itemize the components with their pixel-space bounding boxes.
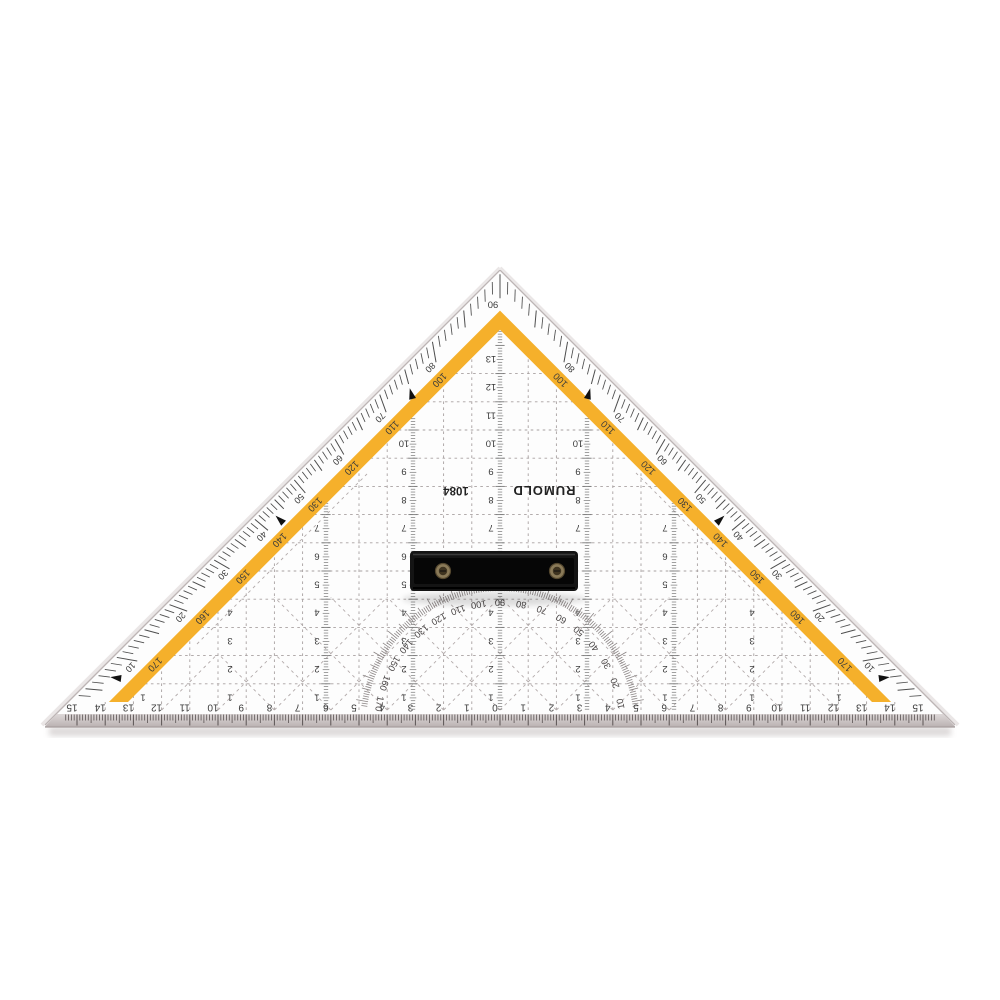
cm-scale-number: 9	[746, 701, 752, 712]
row-number: 5	[662, 578, 667, 589]
row-number: 10	[399, 437, 410, 448]
cm-scale-number: 3	[407, 701, 413, 712]
row-number: 5	[314, 578, 319, 589]
cm-scale-number: 14	[884, 701, 896, 712]
cm-scale-number: 13	[856, 701, 868, 712]
cm-scale-number: 13	[122, 701, 134, 712]
cm-scale-number: 2	[435, 701, 441, 712]
row-number: 3	[314, 635, 319, 646]
row-number: 10	[486, 437, 497, 448]
cm-scale-number: 15	[912, 701, 924, 712]
row-number: 4	[227, 607, 232, 618]
row-number: 1	[401, 691, 406, 702]
row-number: 9	[488, 466, 493, 477]
row-number: 4	[488, 607, 493, 618]
row-number: 7	[488, 522, 493, 533]
cm-scale-number: 11	[800, 701, 811, 712]
row-number: 2	[575, 663, 580, 674]
model-text: 1084	[443, 484, 469, 496]
cm-scale-number: 15	[66, 701, 78, 712]
cm-scale-number: 10	[207, 701, 219, 712]
row-number: 1	[662, 691, 667, 702]
row-number: 11	[486, 409, 496, 420]
row-number: 1	[836, 691, 841, 702]
row-number: 3	[749, 635, 754, 646]
row-number: 1	[488, 691, 493, 702]
row-number: 6	[314, 550, 319, 561]
cm-scale-number: 4	[605, 701, 611, 712]
row-number: 8	[401, 494, 406, 505]
handle-shadow	[402, 592, 586, 606]
row-number: 12	[486, 381, 497, 392]
cm-scale-number: 10	[771, 701, 783, 712]
cm-scale-zero: 0	[492, 701, 498, 712]
row-number: 4	[662, 607, 667, 618]
triangle-body	[42, 268, 958, 736]
cm-scale-number: 8	[266, 701, 272, 712]
row-number: 1	[749, 691, 754, 702]
cm-scale-number: 2	[548, 701, 554, 712]
row-number: 6	[662, 550, 667, 561]
cm-scale-number: 14	[94, 701, 106, 712]
cm-scale-number: 1	[520, 701, 526, 712]
row-number: 13	[486, 353, 497, 364]
row-number: 7	[575, 522, 580, 533]
row-number: 9	[575, 466, 580, 477]
row-number: 2	[662, 663, 667, 674]
row-number: 2	[749, 663, 754, 674]
row-number: 5	[401, 578, 406, 589]
row-number: 4	[401, 607, 406, 618]
row-number: 7	[314, 522, 319, 533]
cm-scale-number: 12	[151, 701, 163, 712]
row-number: 2	[314, 663, 319, 674]
row-number: 2	[227, 663, 232, 674]
arc-degree-label: 10	[615, 698, 627, 710]
cm-scale-number: 7	[294, 701, 300, 712]
set-square-photo: 1111111112222222333333344444445556667777…	[0, 0, 1000, 1000]
row-number: 1	[314, 691, 319, 702]
row-number: 1	[140, 691, 145, 702]
cm-scale-number: 8	[717, 701, 723, 712]
row-number: 7	[662, 522, 667, 533]
drop-shadow	[49, 727, 951, 736]
row-number: 2	[401, 663, 406, 674]
cm-scale-number: 5	[633, 701, 639, 712]
apex-degree-label: 90	[488, 298, 499, 309]
row-number: 2	[488, 663, 493, 674]
row-number: 9	[401, 466, 406, 477]
row-number: 4	[314, 607, 319, 618]
cm-scale-number: 6	[661, 701, 667, 712]
cm-scale-number: 11	[179, 701, 190, 712]
cm-scale-number: 7	[689, 701, 695, 712]
product-photo: 1111111112222222333333344444445556667777…	[0, 0, 1000, 1000]
row-number: 10	[573, 437, 584, 448]
row-number: 1	[575, 691, 580, 702]
cm-scale-number: 5	[351, 701, 357, 712]
row-number: 3	[662, 635, 667, 646]
cm-scale-number: 3	[576, 701, 582, 712]
row-number: 4	[749, 607, 754, 618]
row-number: 6	[401, 550, 406, 561]
cm-scale-number: 6	[323, 701, 329, 712]
row-number: 8	[488, 494, 493, 505]
row-number: 3	[227, 635, 232, 646]
cm-scale-number: 4	[379, 701, 385, 712]
handle	[402, 551, 586, 606]
cm-scale-number: 1	[464, 701, 470, 712]
cm-scale-number: 12	[827, 701, 839, 712]
row-number: 1	[227, 691, 232, 702]
row-number: 7	[401, 522, 406, 533]
brand-text: RUMOLD	[512, 483, 575, 498]
cm-scale-number: 9	[238, 701, 244, 712]
row-number: 3	[488, 635, 493, 646]
